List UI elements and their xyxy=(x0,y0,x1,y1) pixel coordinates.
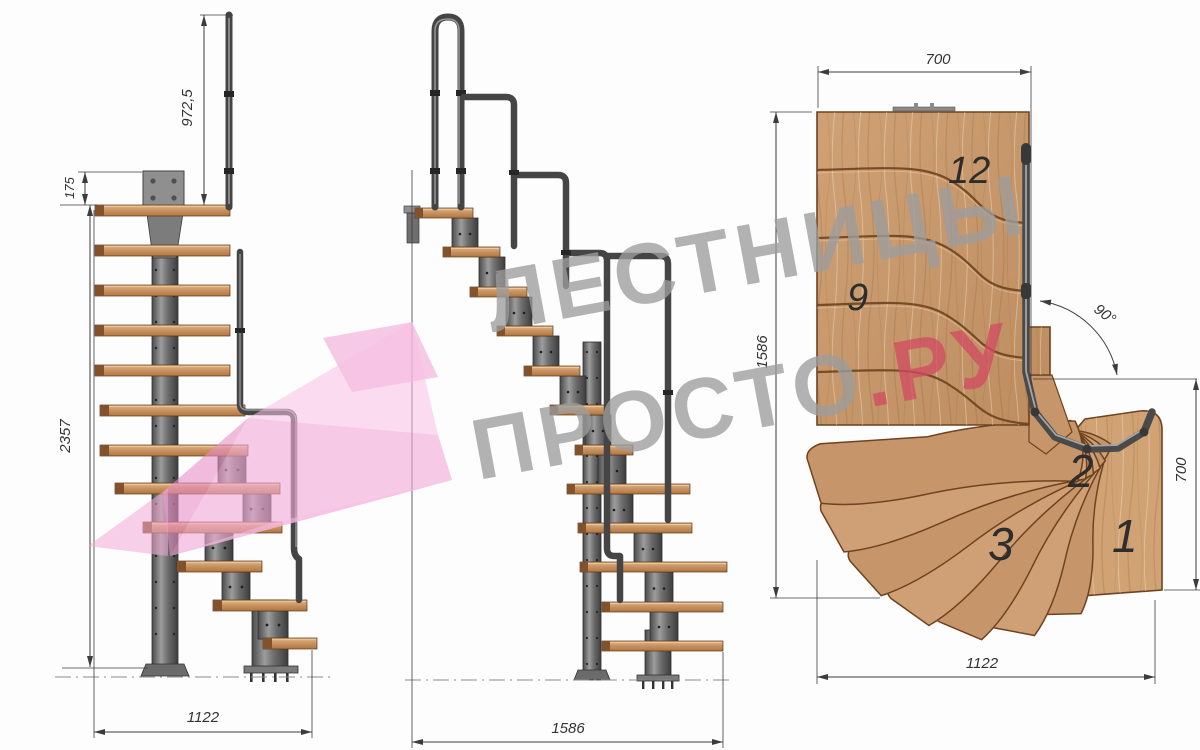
front-step xyxy=(602,602,723,612)
side-mounting-plate xyxy=(143,171,184,207)
side-step xyxy=(95,245,230,256)
side-step xyxy=(177,561,262,572)
watermark-arrow xyxy=(88,322,452,556)
front-column-base xyxy=(574,670,610,680)
plan-step-label-3: 3 xyxy=(988,518,1014,570)
plan-step-label-1: 1 xyxy=(1112,510,1138,562)
side-module xyxy=(258,611,288,639)
plan-step-label-2: 2 xyxy=(1067,445,1094,497)
dim-side-run: 1122 xyxy=(187,709,220,726)
front-anchor-bolts xyxy=(642,681,673,689)
front-step xyxy=(578,523,692,533)
drawing-canvas: 12 9 3 2 1 xyxy=(0,0,1200,750)
front-step xyxy=(602,641,723,651)
side-step xyxy=(95,325,230,336)
side-column-base xyxy=(141,664,189,676)
side-step xyxy=(95,365,230,376)
front-step xyxy=(567,484,690,494)
side-step xyxy=(95,285,230,296)
dim-front-run: 1586 xyxy=(551,720,585,737)
front-step xyxy=(524,366,580,376)
dim-plan-right-depth: 700 xyxy=(1173,457,1190,483)
front-step xyxy=(415,208,473,218)
side-step xyxy=(213,600,307,611)
front-module xyxy=(650,612,678,642)
front-module xyxy=(634,533,662,565)
side-support-base-plate xyxy=(244,666,298,673)
plan-wall-bracket xyxy=(893,107,955,111)
side-step xyxy=(263,638,317,649)
front-step xyxy=(580,562,727,572)
side-step xyxy=(100,405,245,416)
plan-wall-bracket-pin xyxy=(914,103,918,109)
dim-plan-bottom-width: 1122 xyxy=(966,655,999,672)
side-main-column xyxy=(152,207,178,669)
side-module xyxy=(222,572,250,602)
dim-plan-turn-angle: 90° xyxy=(1091,301,1119,328)
side-step xyxy=(95,205,230,216)
front-module xyxy=(452,218,478,250)
dim-plan-top-width: 700 xyxy=(925,51,951,68)
staircase-technical-drawing: 12 9 3 2 1 xyxy=(0,0,1200,750)
front-elevation-view xyxy=(404,17,732,689)
dim-side-top-plate: 175 xyxy=(62,176,77,198)
dim-side-handrail-height: 972,5 xyxy=(179,89,196,127)
dim-side-total-height: 2357 xyxy=(57,419,74,454)
plan-wall-bracket-pin2 xyxy=(930,103,934,109)
front-module xyxy=(645,572,673,605)
